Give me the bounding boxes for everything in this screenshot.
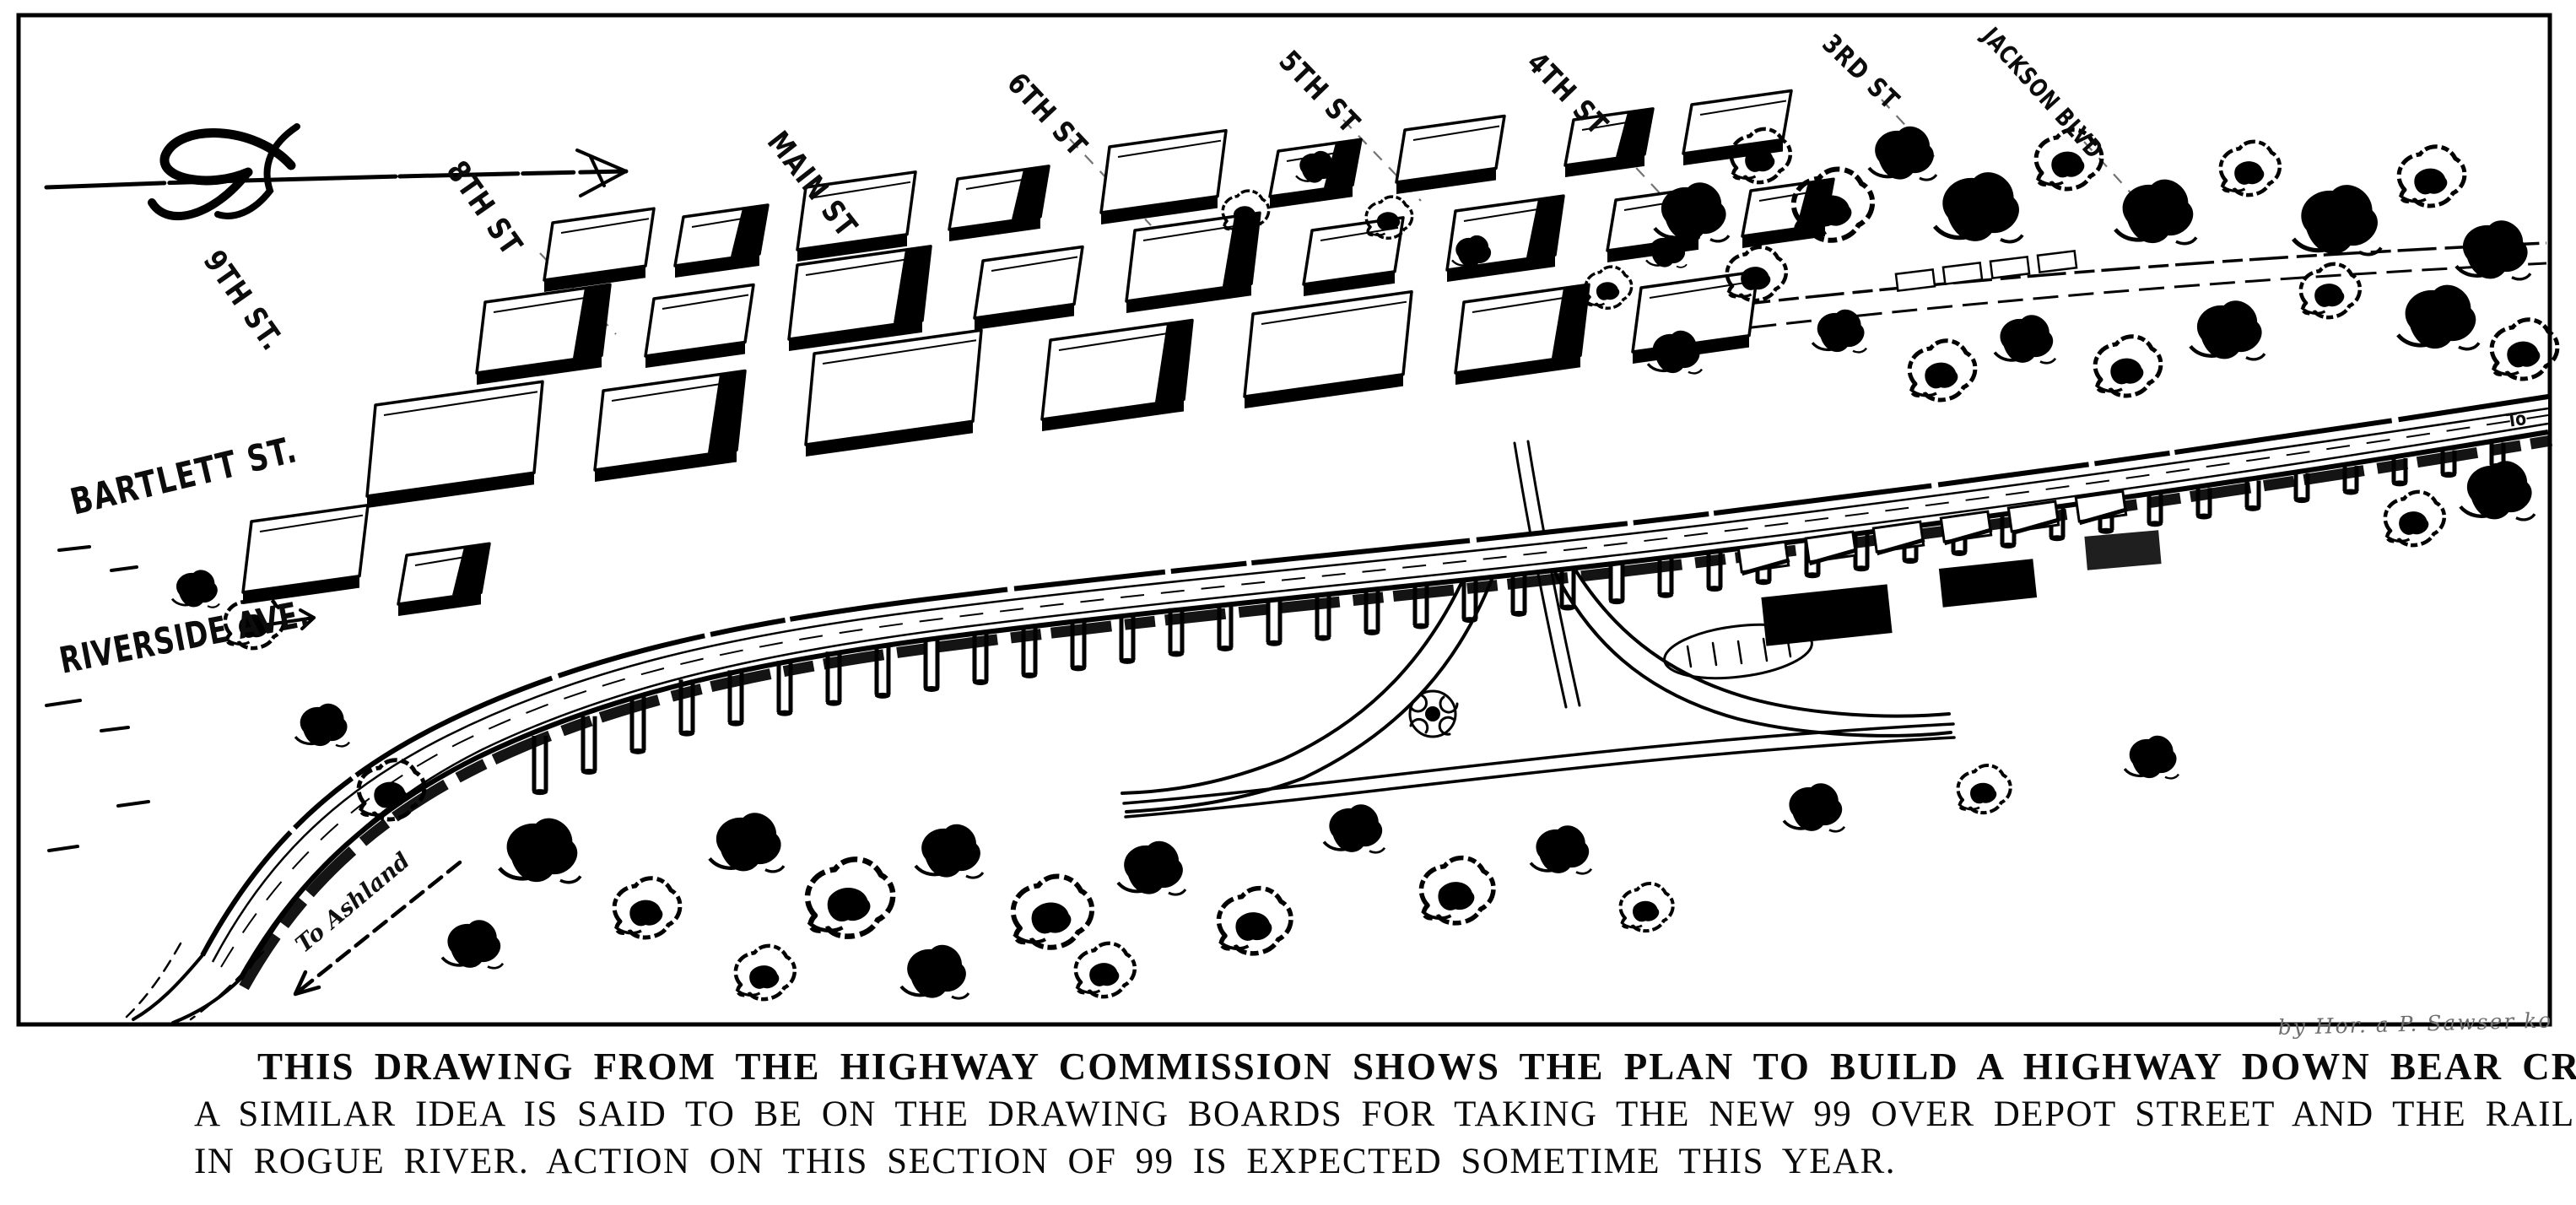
caption-line-2: A SIMILAR IDEA IS SAID TO BE ON THE DRAW… bbox=[194, 1094, 2576, 1135]
aerial-plan-drawing: 9TH ST. 8TH ST MAIN ST 6TH ST 5TH ST 4TH… bbox=[0, 0, 2576, 1205]
to-edge-label: To bbox=[2505, 408, 2527, 432]
caption-line-3: IN ROGUE RIVER. ACTION ON THIS SECTION O… bbox=[194, 1141, 1896, 1182]
caption-line-1: THIS DRAWING FROM THE HIGHWAY COMMISSION… bbox=[257, 1045, 2576, 1089]
newspaper-clipping: 9TH ST. 8TH ST MAIN ST 6TH ST 5TH ST 4TH… bbox=[0, 0, 2576, 1205]
